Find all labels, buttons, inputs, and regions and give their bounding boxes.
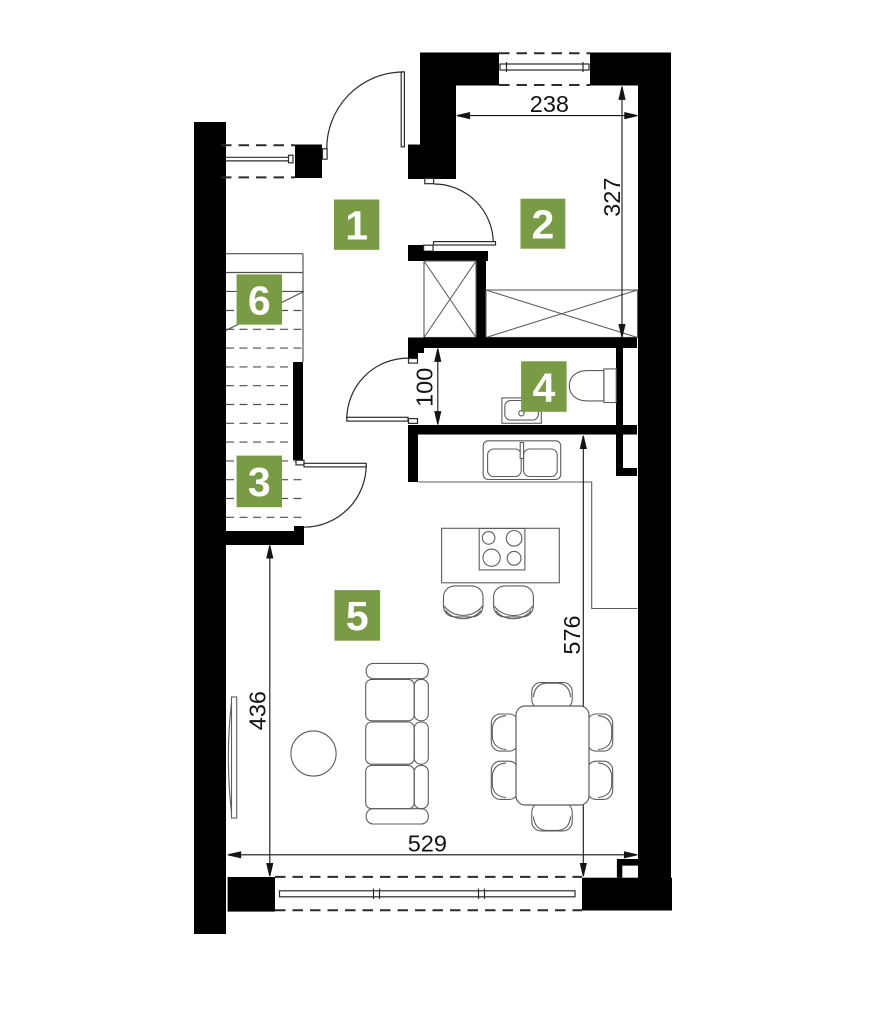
svg-text:576: 576 [559,615,585,654]
svg-text:1: 1 [345,203,368,249]
svg-text:6: 6 [248,277,271,323]
svg-text:238: 238 [530,91,569,117]
svg-text:436: 436 [245,691,271,730]
svg-text:5: 5 [346,593,369,639]
svg-text:100: 100 [411,368,437,407]
svg-text:327: 327 [599,178,625,217]
svg-text:529: 529 [408,831,447,857]
svg-text:3: 3 [248,459,271,505]
svg-text:4: 4 [532,364,555,410]
svg-text:2: 2 [531,202,554,248]
